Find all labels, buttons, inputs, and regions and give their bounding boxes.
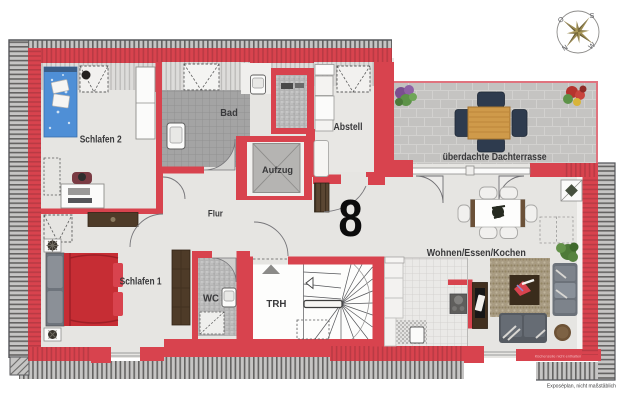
svg-text:Abstell: Abstell — [334, 122, 363, 133]
svg-text:S: S — [590, 13, 595, 20]
svg-text:Wohnen/Essen/Kochen: Wohnen/Essen/Kochen — [427, 248, 526, 259]
svg-text:Schlafen 1: Schlafen 1 — [120, 275, 162, 287]
svg-text:8: 8 — [338, 191, 362, 248]
svg-text:Küchenzeile nicht enthalten: Küchenzeile nicht enthalten — [535, 355, 581, 359]
svg-text:Exposéplan, nicht maßstäblich: Exposéplan, nicht maßstäblich — [547, 384, 616, 390]
svg-text:Schlafen 2: Schlafen 2 — [80, 134, 122, 146]
svg-text:überdachte Dachterrasse: überdachte Dachterrasse — [443, 152, 547, 163]
svg-text:WC: WC — [203, 293, 219, 305]
svg-text:Aufzug: Aufzug — [262, 165, 293, 176]
svg-text:Bad: Bad — [220, 107, 238, 119]
svg-text:Flur: Flur — [208, 209, 223, 220]
svg-text:TRH: TRH — [266, 298, 286, 310]
